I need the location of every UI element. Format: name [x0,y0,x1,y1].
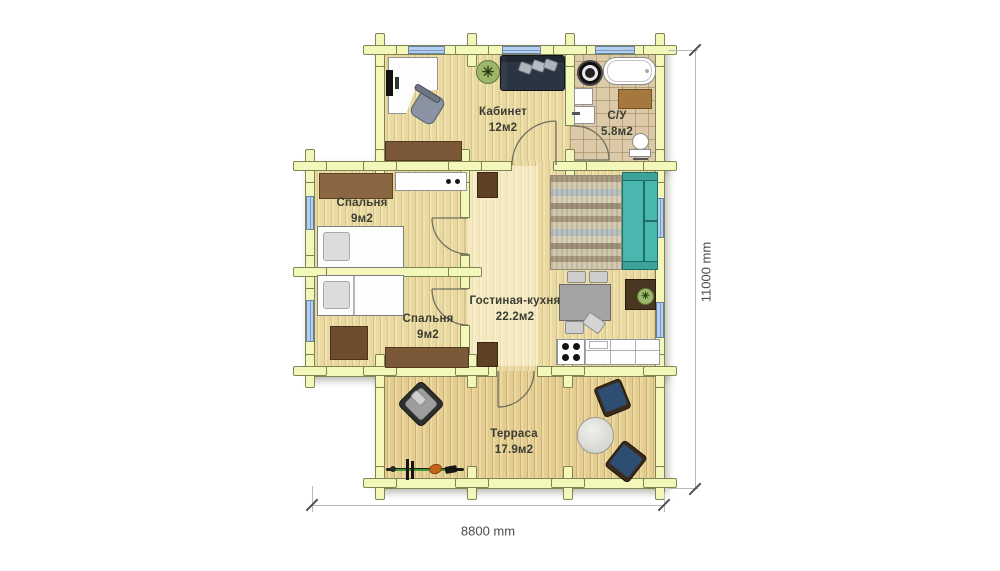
log-end [293,161,327,171]
computer-monitor-icon [386,70,393,96]
bicycle-handlebar [406,459,409,480]
log-end [293,366,327,376]
bath-mat [618,89,652,109]
log-end [448,267,482,277]
window [595,46,635,54]
log-end [643,161,677,171]
counter-divider [585,339,586,365]
bicycle-frame [394,469,452,471]
log-end [553,45,587,55]
bed-pillow [323,232,350,261]
bathroom-cabinet [574,88,593,105]
computer-keyboard-icon [395,77,399,89]
toilet-base [633,158,648,160]
bed-pillow [323,281,350,309]
log-end [363,45,397,55]
window [656,302,664,338]
dimension-label-vertical: 11000 mm [699,242,714,302]
room-label-bedroom1: Спальня 9м2 [282,195,442,227]
log-end [455,478,489,488]
kitchen-sink [589,341,608,349]
washing-machine-door [582,65,598,81]
room-label-terrace: Терраса 17.9м2 [434,426,594,458]
console-knob [455,179,460,184]
stove-icon [557,339,585,365]
counter-divider [610,339,611,365]
dimension-label-horizontal: 8800 mm [461,524,515,539]
dimension-line-horizontal [312,505,664,506]
room-label-living: Гостиная-кухня 22.2м2 [425,293,605,325]
stove-burner [562,354,569,361]
log-end [551,366,585,376]
teal-sofa-seamline [644,220,657,222]
log-end [643,366,677,376]
dresser [385,347,469,368]
bed-divider-line [353,276,355,315]
room-area: 9м2 [282,211,442,227]
dining-chair [589,271,608,283]
extension-line [312,486,313,512]
floor-plan: ✳ ✳ [0,0,1000,571]
bicycle-handlebar [411,461,414,479]
room-name: Гостиная-кухня [425,293,605,309]
potted-plant-icon: ✳ [637,288,654,305]
console-knob [446,179,451,184]
teal-sofa-armrest [622,172,658,181]
bathtub-drain [645,69,649,73]
stove-burner [573,354,580,361]
room-area: 17.9м2 [434,442,594,458]
window [408,46,445,54]
toilet-tank [629,149,651,157]
cabinet [477,172,498,198]
window [306,300,314,342]
counter-shelf-line [586,350,659,351]
counter-divider [635,339,636,365]
striped-rug [550,175,622,270]
room-label-bathroom: С/У 5.8м2 [557,108,677,140]
room-name: С/У [557,108,677,124]
room-name: Терраса [434,426,594,442]
stove-burner [573,343,580,350]
log-end [363,161,397,171]
room-name: Спальня [282,195,442,211]
bicycle-hub [390,466,396,472]
office-sideboard [385,141,462,161]
log-end [455,45,489,55]
room-area: 9м2 [348,327,508,343]
stove-burner [562,343,569,350]
log-end [643,478,677,488]
room-area: 5.8м2 [557,124,677,140]
potted-plant-icon: ✳ [476,60,500,84]
log-end [551,478,585,488]
window [502,46,541,54]
dining-chair [567,271,586,283]
teal-sofa-armrest [622,261,658,270]
cabinet [477,342,498,367]
room-area: 22.2м2 [425,309,605,325]
dimension-line-vertical [695,50,696,489]
log-end [363,478,397,488]
log-end [553,161,587,171]
log-end [448,161,482,171]
